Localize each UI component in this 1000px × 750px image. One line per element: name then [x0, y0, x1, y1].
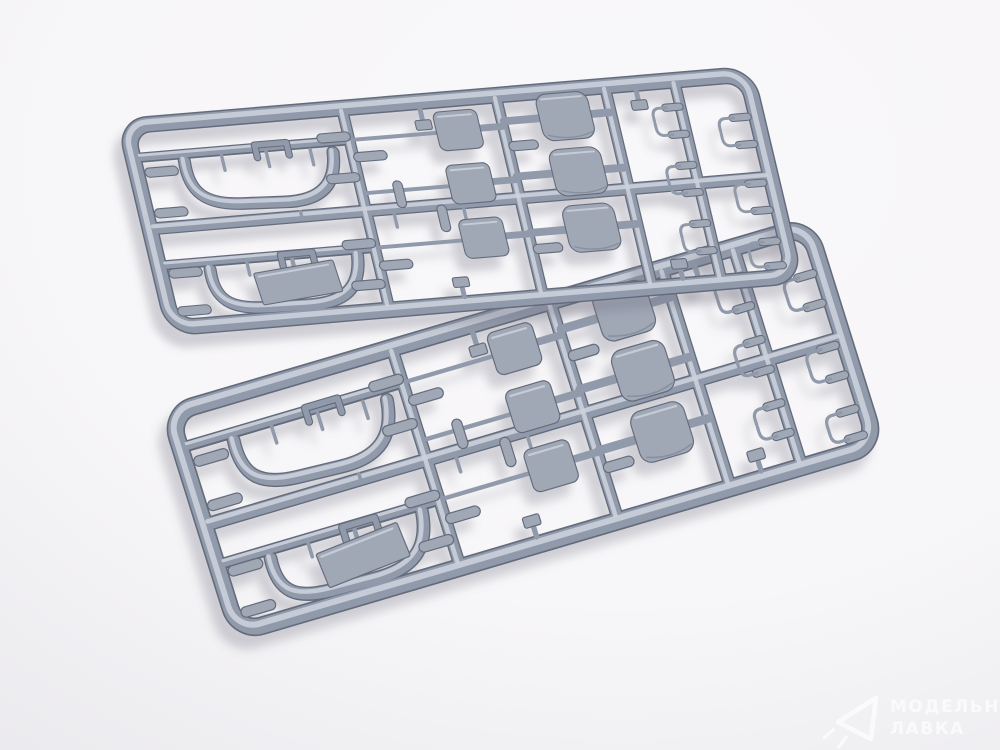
photo-canvas: МОДЕЛЬНАЯ ЛАВКА	[0, 0, 1000, 750]
watermark-text-line2: ЛАВКА	[890, 719, 965, 739]
watermark-text-line1: МОДЕЛЬНАЯ	[890, 697, 1000, 717]
photo-stage: МОДЕЛЬНАЯ ЛАВКА	[0, 0, 1000, 750]
